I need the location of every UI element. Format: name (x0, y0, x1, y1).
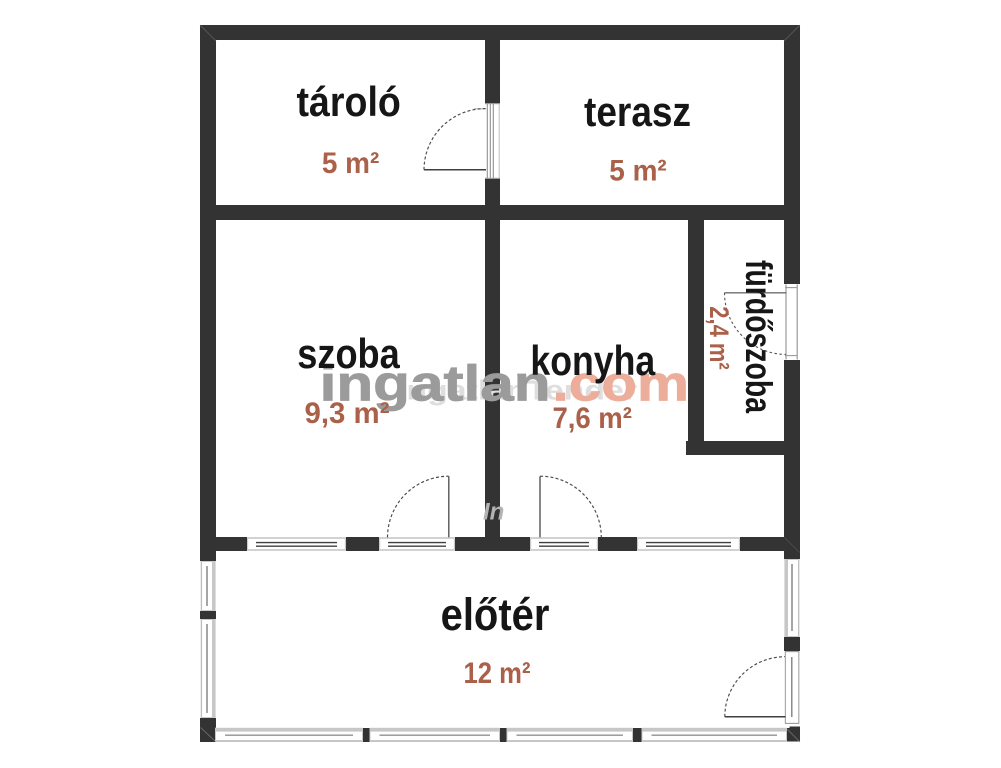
svg-text:előtér: előtér (441, 589, 550, 640)
svg-text:szoba: szoba (297, 330, 400, 377)
svg-text:2,4 m²: 2,4 m² (703, 306, 733, 370)
svg-text:12 m²: 12 m² (464, 657, 531, 690)
svg-text:5 m²: 5 m² (322, 147, 379, 180)
svg-text:konyha: konyha (530, 337, 655, 384)
svg-text:5 m²: 5 m² (609, 155, 667, 188)
svg-text:7,6 m²: 7,6 m² (552, 402, 632, 435)
svg-text:fürdőszoba: fürdőszoba (738, 260, 779, 414)
svg-text:terasz: terasz (584, 88, 691, 135)
svg-text:9,3 m²: 9,3 m² (305, 397, 390, 430)
svg-text:tároló: tároló (297, 78, 401, 125)
svg-text:In: In (483, 499, 504, 526)
